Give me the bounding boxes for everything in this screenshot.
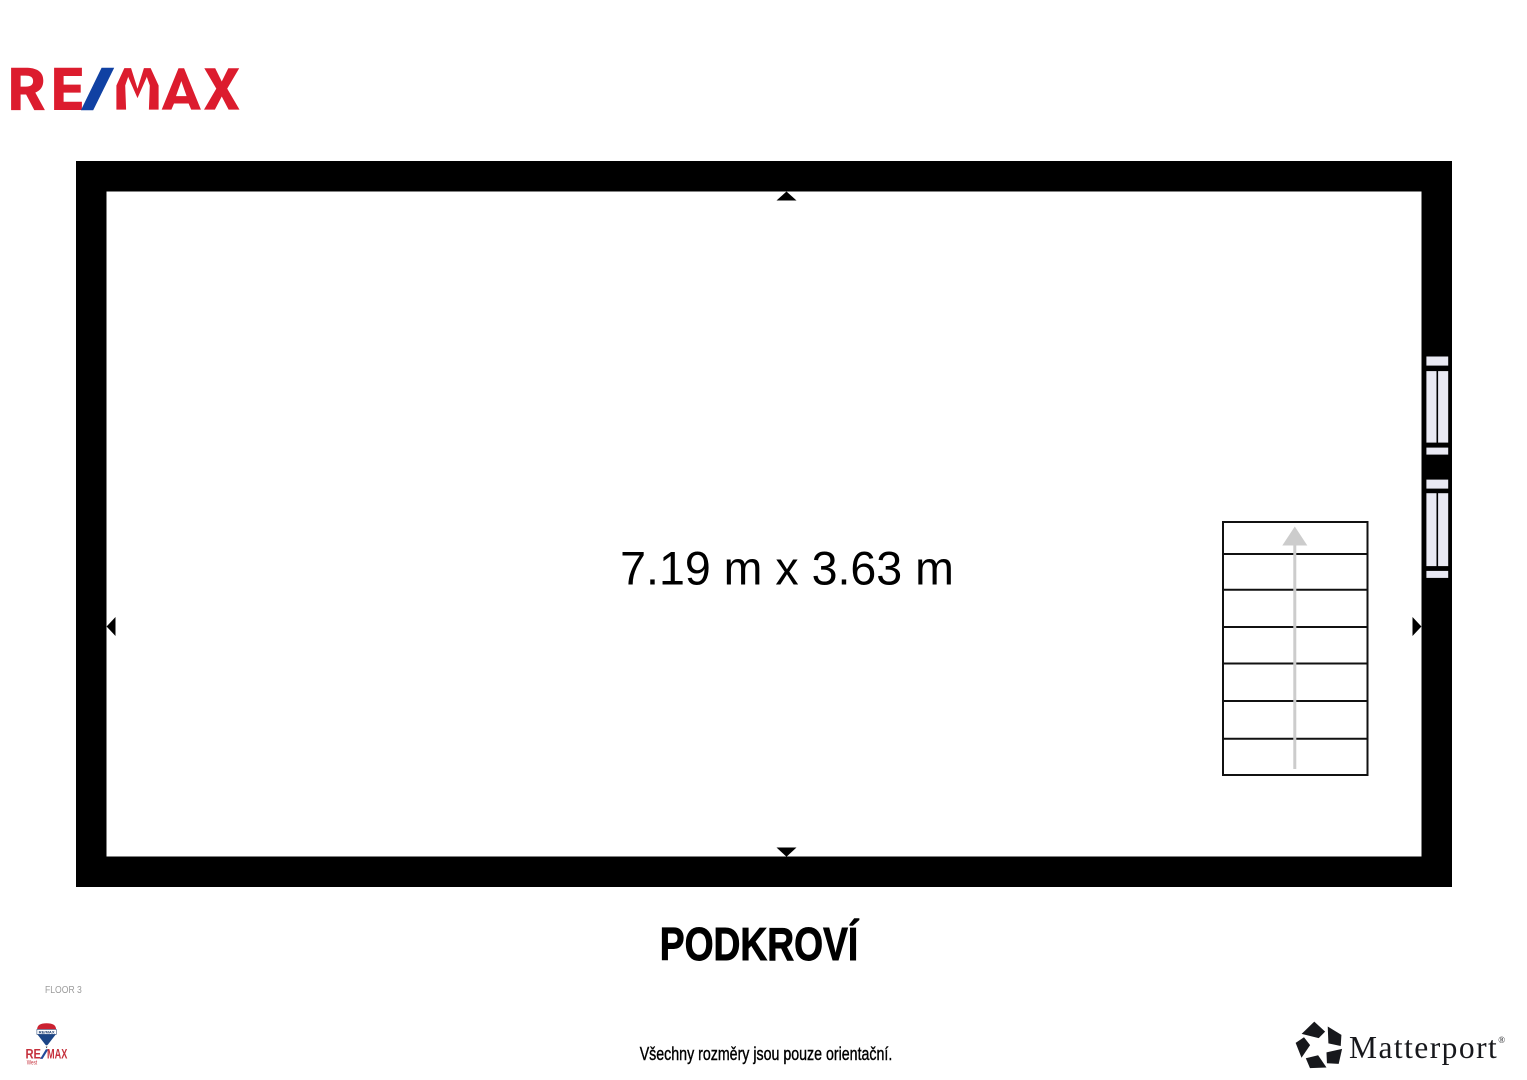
svg-text:RE/MAX: RE/MAX — [39, 1030, 55, 1035]
svg-text:RE: RE — [26, 1047, 42, 1062]
svg-text:MAX: MAX — [47, 1047, 67, 1062]
svg-text:West: West — [27, 1061, 38, 1067]
